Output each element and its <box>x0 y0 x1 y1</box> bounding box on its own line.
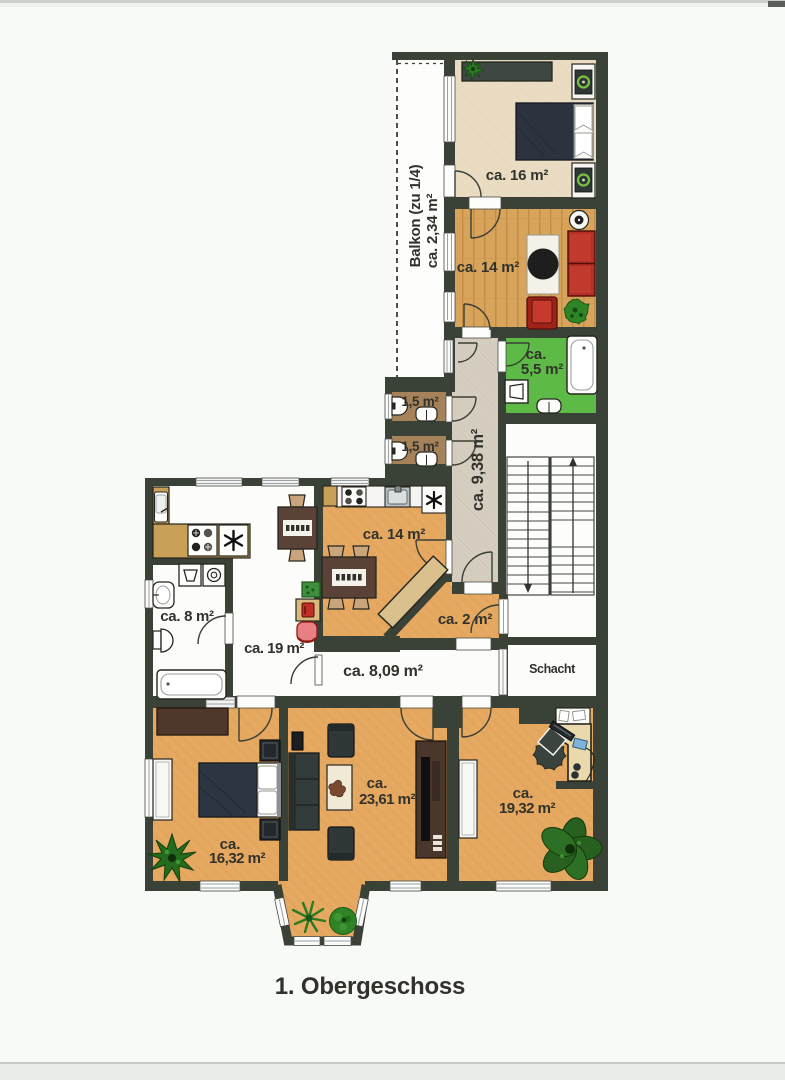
svg-text:ca. 14 m²: ca. 14 m² <box>363 526 426 543</box>
svg-text:Schacht: Schacht <box>529 662 576 676</box>
svg-text:ca. 2 m²: ca. 2 m² <box>438 611 492 628</box>
svg-text:ca. 8 m²: ca. 8 m² <box>160 608 214 625</box>
svg-text:1,5 m²: 1,5 m² <box>401 439 439 454</box>
svg-text:5,5 m²: 5,5 m² <box>521 361 563 378</box>
svg-text:ca. 14 m²: ca. 14 m² <box>457 259 520 276</box>
svg-text:ca. 16 m²: ca. 16 m² <box>486 167 549 184</box>
svg-text:16,32 m²: 16,32 m² <box>209 850 266 867</box>
svg-text:ca. 9,38 m²: ca. 9,38 m² <box>469 428 487 511</box>
svg-text:ca.: ca. <box>367 775 388 792</box>
svg-text:ca. 19 m²: ca. 19 m² <box>244 640 304 657</box>
svg-text:ca. 2,34 m²: ca. 2,34 m² <box>424 194 441 269</box>
svg-text:23,61 m²: 23,61 m² <box>359 791 416 808</box>
svg-text:ca. 8,09 m²: ca. 8,09 m² <box>343 663 423 680</box>
svg-text:19,32 m²: 19,32 m² <box>499 800 556 817</box>
svg-text:1,5 m²: 1,5 m² <box>401 394 439 409</box>
svg-text:1. Obergeschoss: 1. Obergeschoss <box>275 973 465 1000</box>
svg-text:Balkon (zu 1/4): Balkon (zu 1/4) <box>407 164 424 267</box>
